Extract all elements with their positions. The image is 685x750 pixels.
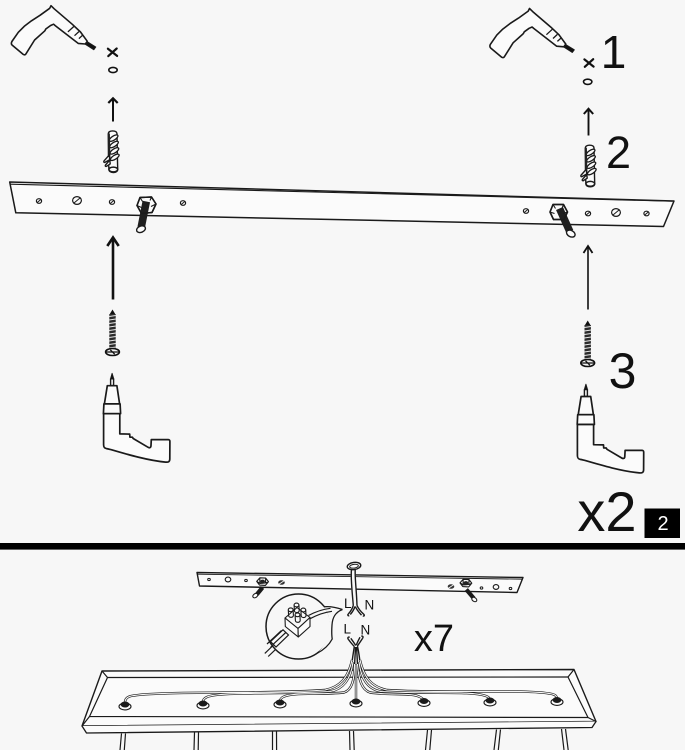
svg-text:2: 2: [657, 513, 668, 535]
svg-text:2: 2: [606, 127, 631, 178]
svg-text:1: 1: [601, 26, 627, 78]
svg-text:L: L: [344, 622, 352, 637]
svg-text:x2: x2: [577, 480, 636, 543]
svg-text:N: N: [365, 598, 375, 613]
svg-text:x7: x7: [414, 618, 454, 660]
svg-text:3: 3: [609, 343, 637, 399]
svg-text:L: L: [344, 596, 352, 611]
svg-text:N: N: [361, 623, 371, 638]
